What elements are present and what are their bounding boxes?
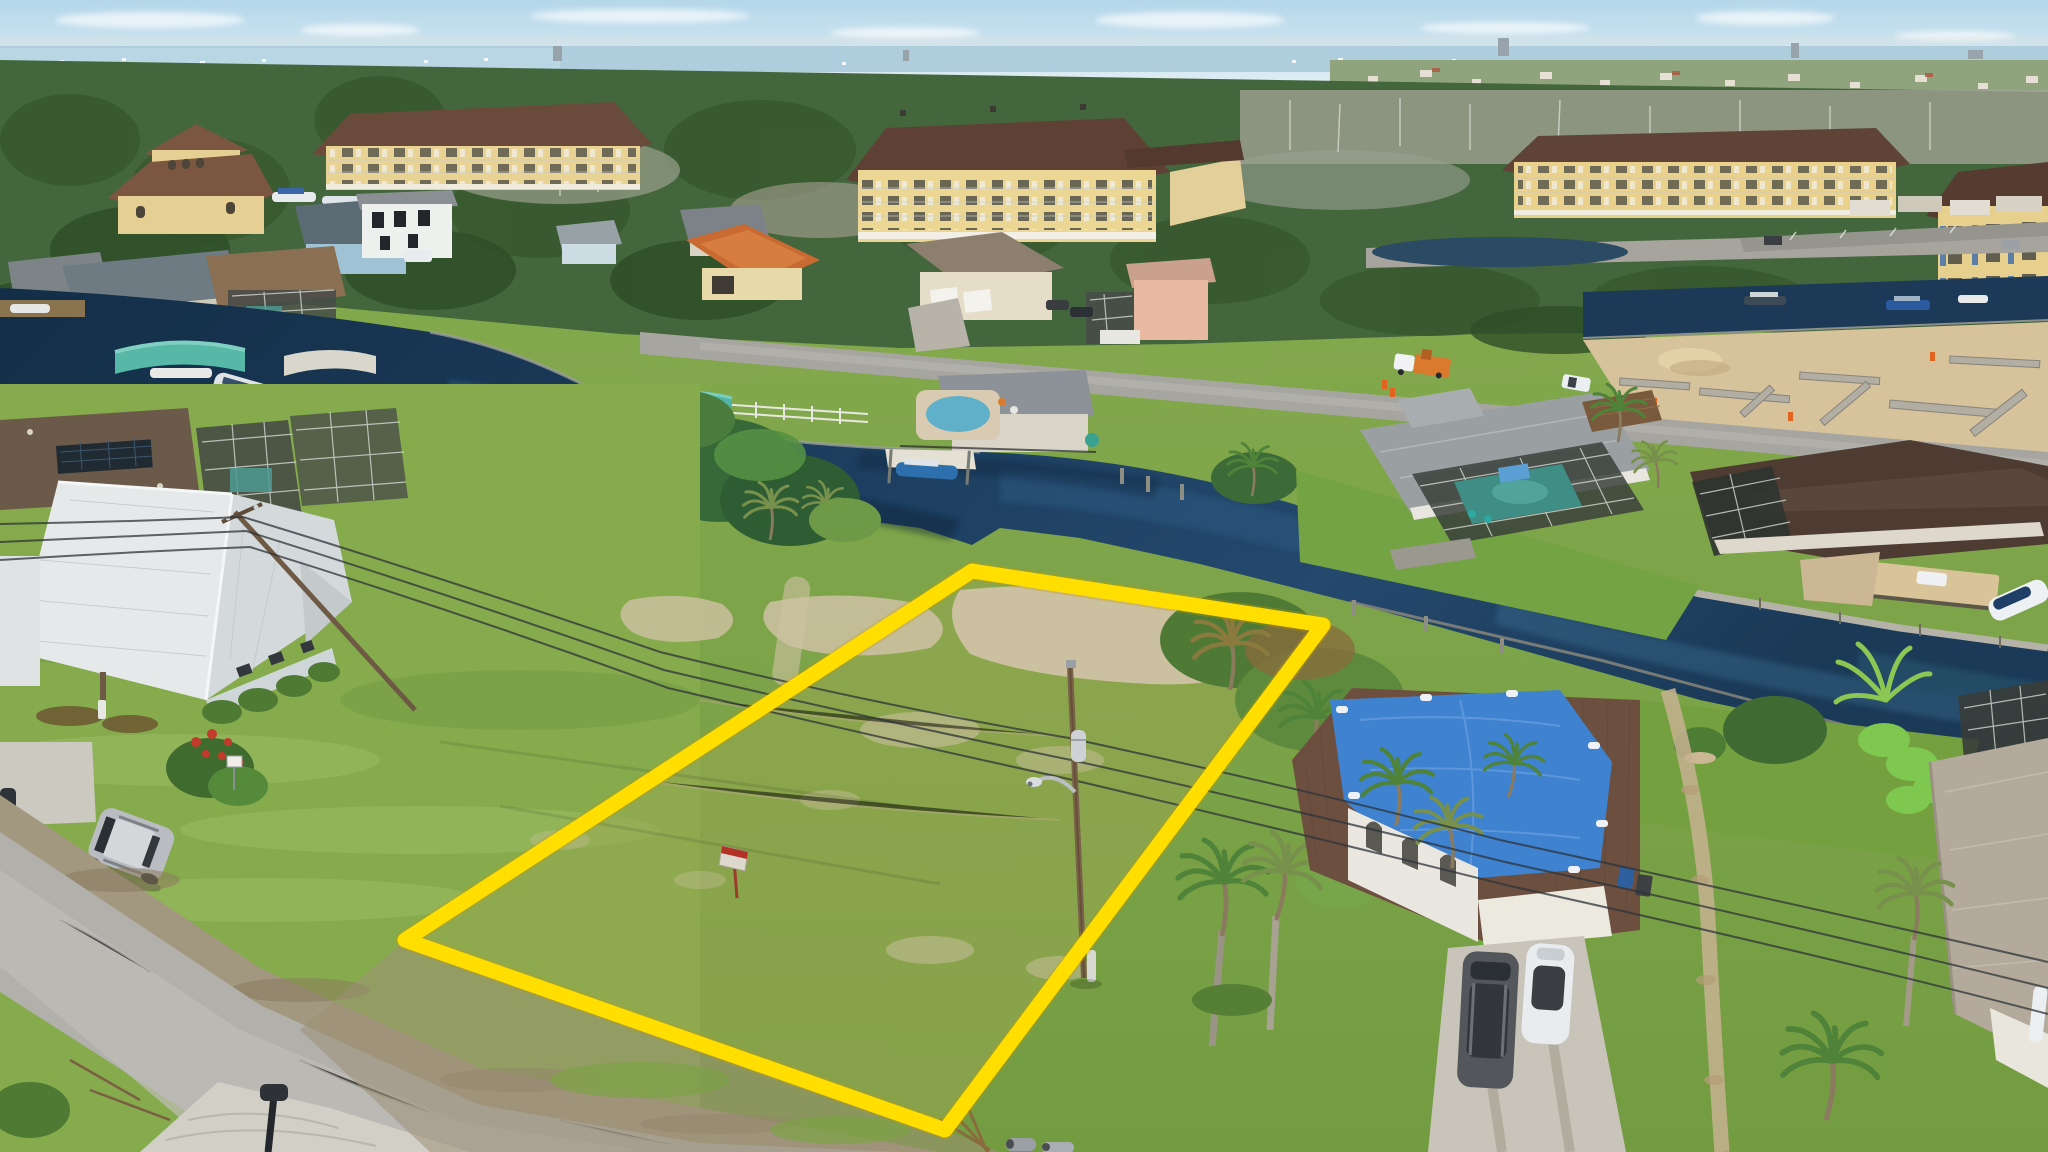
- condo-building-1: [312, 102, 652, 190]
- pond: [1372, 237, 1628, 267]
- sand-path: [1800, 552, 1880, 606]
- parked-car: [2002, 240, 2020, 249]
- pvc-conduit: [1087, 950, 1096, 982]
- dark-suv: [1456, 951, 1519, 1090]
- white-van: [404, 250, 432, 262]
- big-tree: [1723, 696, 1827, 764]
- pool: [230, 468, 272, 492]
- white-car: [1520, 942, 1575, 1045]
- parked-car: [1764, 236, 1782, 245]
- transformer: [1071, 730, 1086, 762]
- pole-top-fixture: [1066, 660, 1076, 668]
- teal-umbrella: [1085, 433, 1099, 447]
- boat: [10, 304, 50, 313]
- garage-door: [963, 289, 992, 313]
- white-two-story-house: [356, 190, 458, 262]
- parked-car: [1070, 307, 1093, 317]
- aerial-photo: [0, 0, 2048, 1152]
- small-yard-sign: [227, 756, 242, 767]
- parked-car: [1046, 300, 1069, 310]
- garage-door: [712, 276, 734, 294]
- condo-building-3: [1502, 128, 1910, 218]
- pale-blue-house: [556, 220, 622, 264]
